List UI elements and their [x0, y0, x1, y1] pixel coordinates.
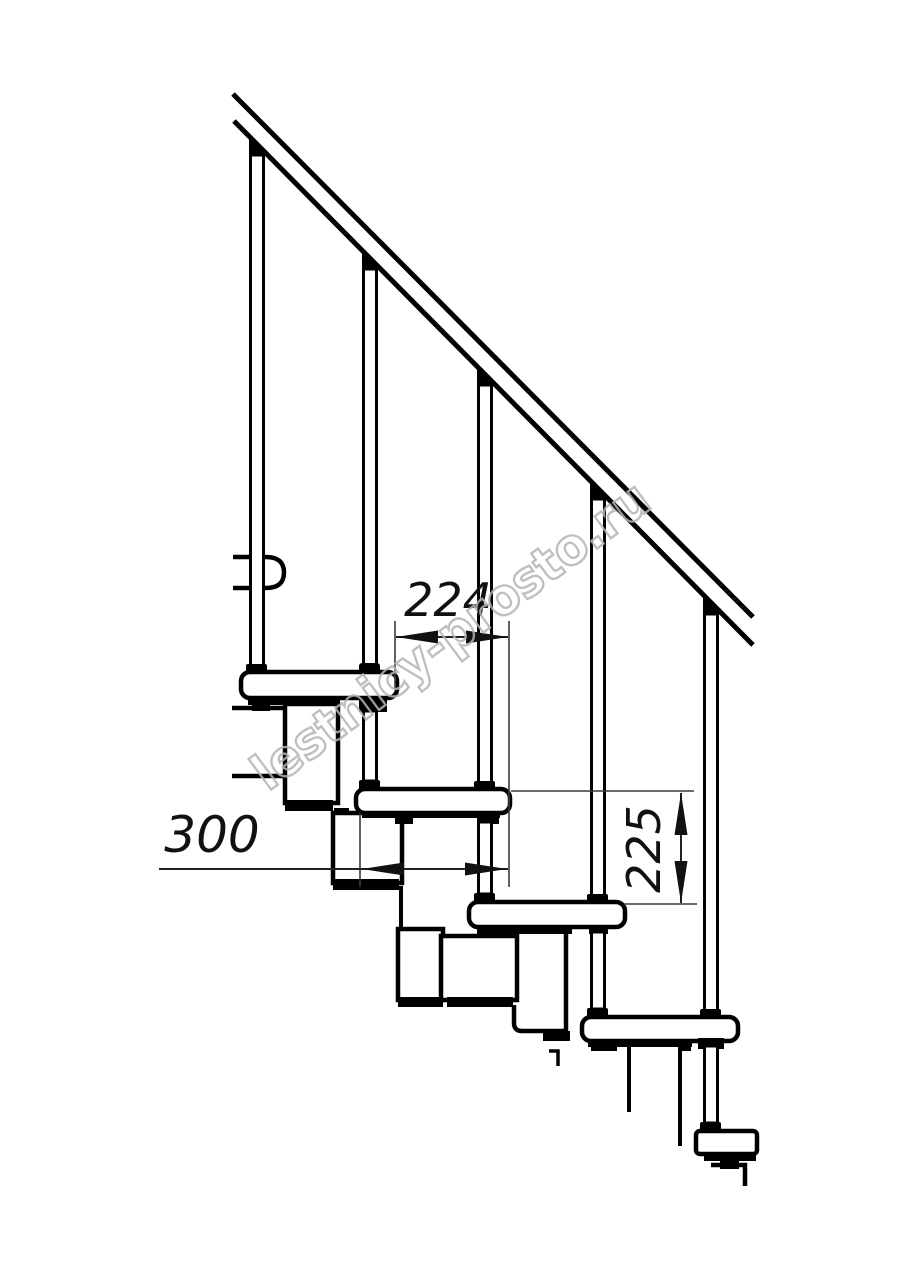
rod-3-shaft: [479, 822, 492, 894]
handrail-bottom-line: [234, 121, 753, 645]
module-2-flange: [333, 879, 399, 890]
rod-4: [587, 932, 608, 1018]
drawing-svg: 224 300 225 lestnicy-prosto.ru: [0, 0, 914, 1280]
baluster-3-foot: [474, 781, 495, 791]
module-3a-flange: [398, 997, 443, 1007]
baluster-2: [359, 250, 380, 673]
module-4-hook: [549, 1051, 558, 1066]
module-3-flange: [447, 997, 513, 1007]
rod-2-foot: [359, 780, 380, 790]
tread-3-board: [469, 902, 625, 927]
dimension-300-label: 300: [164, 806, 259, 864]
module-3-step: [514, 1005, 568, 1031]
tread-5: [696, 1131, 757, 1161]
dimension-225-label: 225: [617, 805, 671, 893]
rod-5-shaft: [705, 1046, 718, 1123]
dimension-225-arrow-up: [675, 793, 688, 835]
tread-5-board: [696, 1131, 757, 1154]
tread-4-lug-a: [591, 1044, 617, 1051]
rod-3: [474, 822, 495, 903]
rod-4-shaft: [592, 932, 605, 1009]
baluster-5-post: [705, 614, 718, 1012]
rod-3-foot: [474, 893, 495, 903]
tread-4-lug-b: [679, 1044, 691, 1051]
tread-2-board: [356, 789, 510, 813]
baluster-1-foot: [246, 664, 267, 674]
baluster-5-foot: [700, 1009, 721, 1019]
baluster-2-post: [364, 269, 377, 665]
baluster-1: [246, 136, 267, 674]
tread-1-lug: [252, 703, 270, 711]
tread-4-board: [582, 1017, 738, 1041]
module-spine: [285, 704, 745, 1186]
rod-5-foot: [700, 1122, 721, 1132]
rod-5: [698, 1038, 724, 1132]
module-3a: [398, 929, 443, 1000]
module-1-flange: [285, 800, 333, 811]
tread-2-lug-a: [395, 816, 413, 824]
module-4-flange: [543, 1031, 570, 1041]
baluster-1-post: [251, 155, 264, 668]
baluster-4-foot: [587, 894, 608, 904]
tread-3: [469, 902, 625, 934]
module-3: [441, 936, 517, 1000]
staircase-technical-drawing: 224 300 225 lestnicy-prosto.ru: [0, 0, 914, 1280]
baluster-5: [700, 594, 721, 1019]
rod-4-foot: [587, 1008, 608, 1018]
dimension-225-arrow-down: [675, 861, 688, 903]
